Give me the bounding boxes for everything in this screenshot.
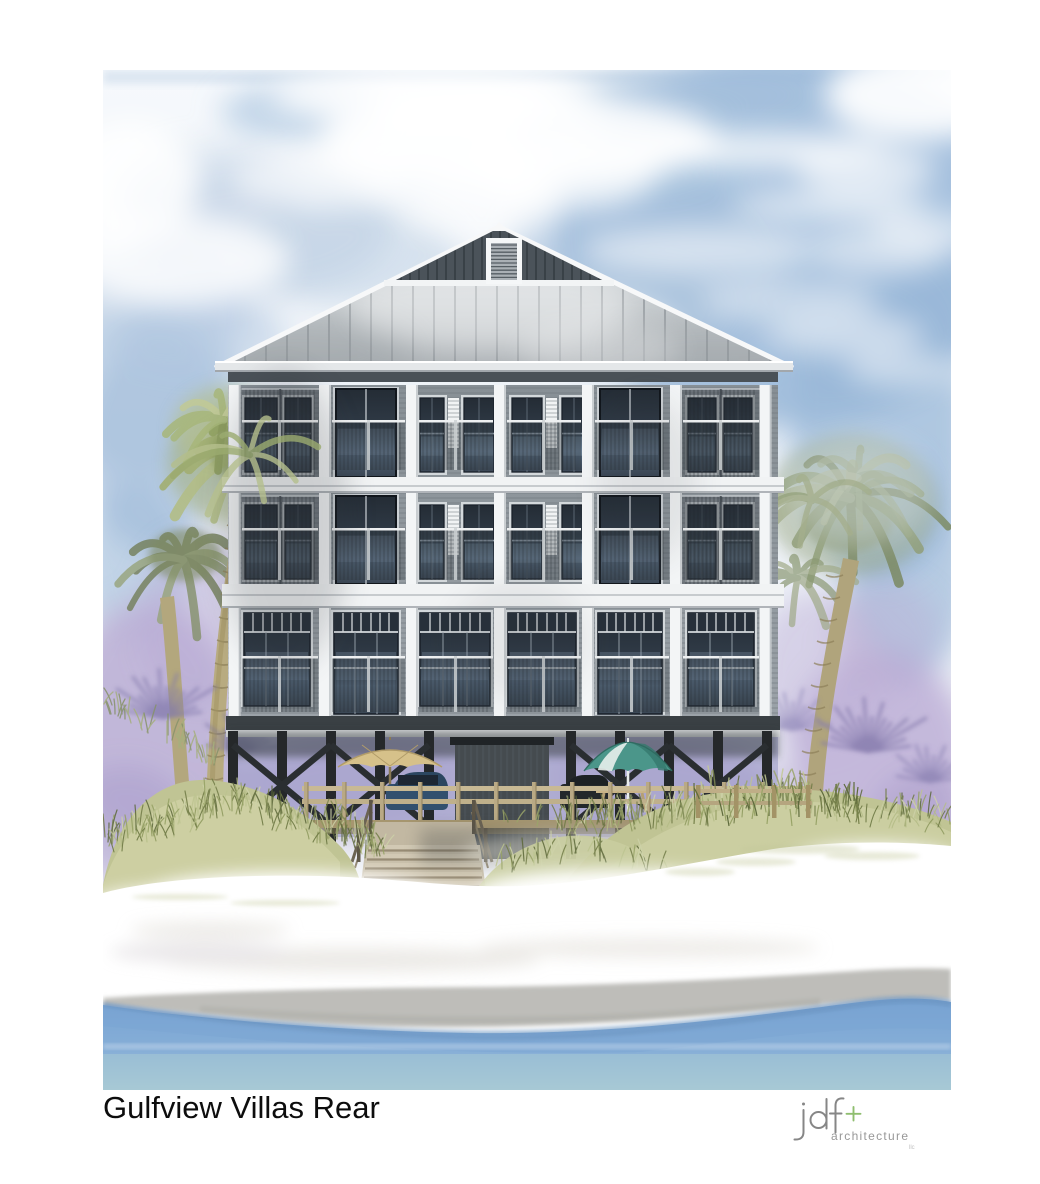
svg-text:llc: llc	[909, 1145, 915, 1151]
svg-text:architecture: architecture	[831, 1129, 909, 1143]
svg-text:Gulfview Villas Rear: Gulfview Villas Rear	[103, 1090, 380, 1125]
